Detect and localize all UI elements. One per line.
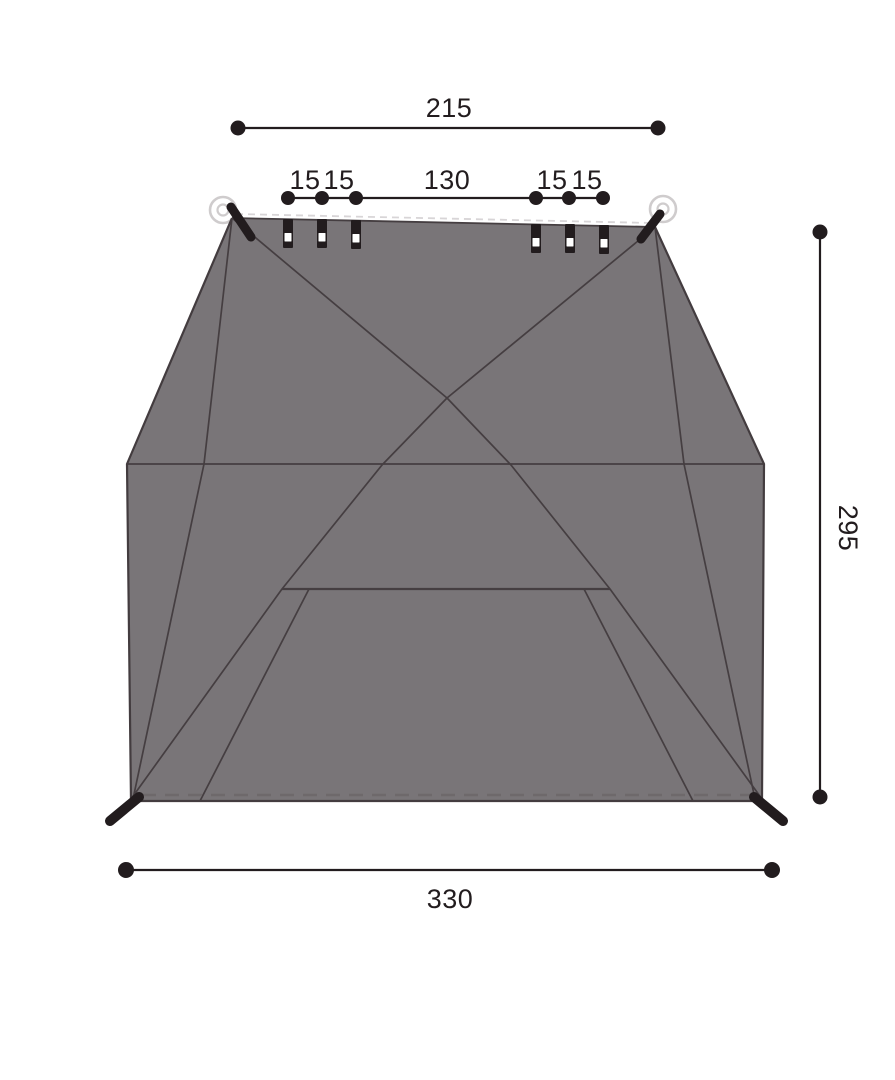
dimension-label: 295: [833, 505, 863, 552]
tab-grommet-hole-icon: [533, 238, 540, 247]
dimension-endpoint-dot: [651, 121, 666, 136]
dimension-endpoint-dot: [813, 790, 828, 805]
dimension-label: 215: [426, 93, 473, 123]
dimension-label: 130: [424, 165, 471, 195]
dimension-top-width: 215: [231, 93, 666, 136]
dimension-label: 330: [427, 884, 474, 914]
webbing-tab: [351, 220, 361, 249]
dimension-side-depth: 295: [813, 225, 864, 805]
dimension-endpoint-dot: [118, 862, 134, 878]
webbing-tab: [283, 219, 293, 248]
dimension-top-segments: 15 15 130 15 15: [281, 165, 610, 205]
dimension-endpoint-dot: [813, 225, 828, 240]
webbing-tab: [531, 224, 541, 253]
tent-footprint-diagram: 215 15 15 130 15 15 295 330: [0, 0, 895, 1080]
dimension-bottom-width: 330: [118, 862, 780, 914]
tab-grommet-hole-icon: [353, 234, 360, 243]
webbing-tab: [317, 219, 327, 248]
tab-grommet-hole-icon: [319, 233, 326, 242]
dimension-label: 15: [289, 165, 320, 195]
dimension-endpoint-dot: [231, 121, 246, 136]
dimension-label: 15: [571, 165, 602, 195]
dimension-endpoint-dot: [764, 862, 780, 878]
tab-grommet-hole-icon: [285, 233, 292, 242]
dimension-label: 15: [323, 165, 354, 195]
stake-loop-bottom-left-icon: [110, 797, 139, 821]
dimension-label: 15: [536, 165, 567, 195]
stake-loop-bottom-right-icon: [754, 797, 783, 821]
webbing-tab: [599, 225, 609, 254]
tab-grommet-hole-icon: [567, 238, 574, 247]
diagram-canvas: 215 15 15 130 15 15 295 330: [0, 0, 895, 1080]
tab-grommet-hole-icon: [601, 239, 608, 248]
webbing-tab: [565, 224, 575, 253]
